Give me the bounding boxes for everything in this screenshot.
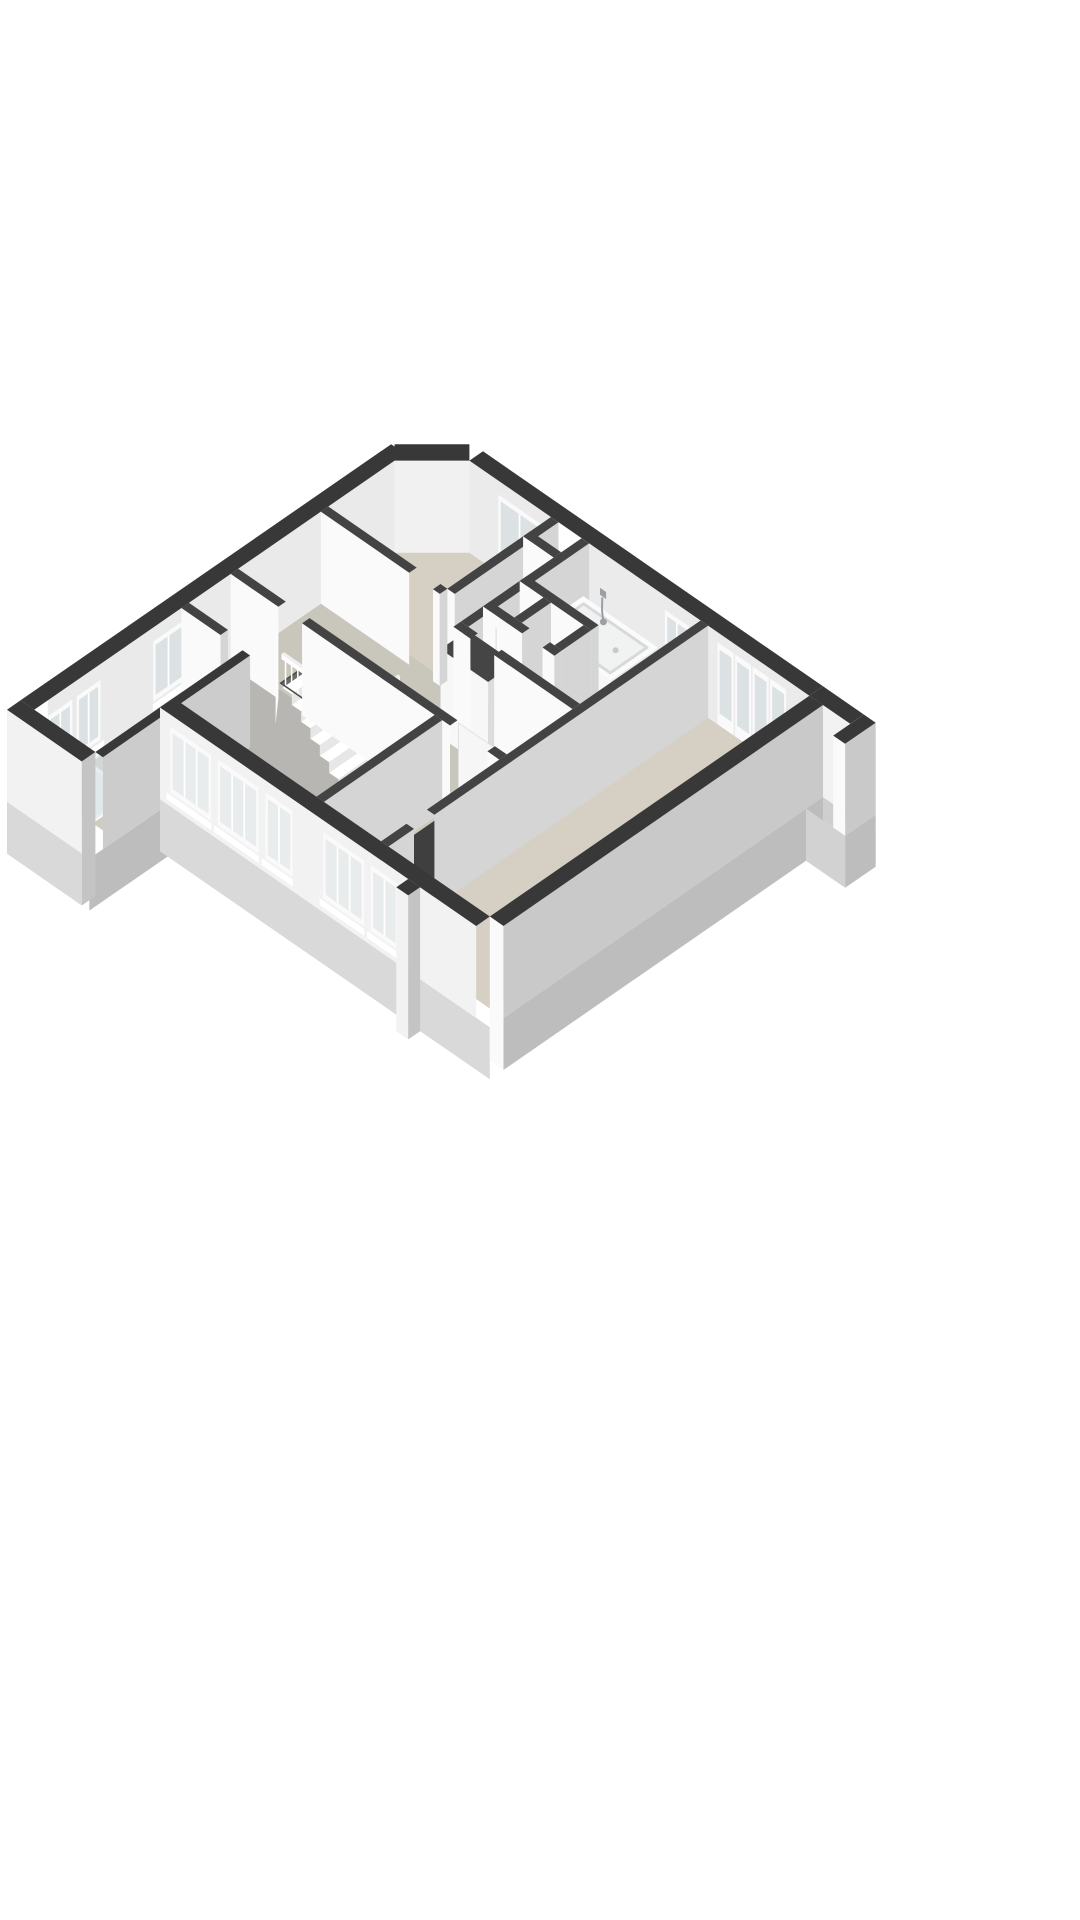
window-sw-3-mullion — [278, 806, 280, 863]
window-sw-1-mullion — [196, 749, 198, 806]
wall-bedroom-south-b-face — [433, 589, 440, 686]
wall-bedroom-south-b-end — [440, 589, 448, 686]
window-sw-4-mullion — [349, 855, 351, 912]
sw-nib-face — [396, 887, 408, 1039]
bath-hand-shower-head — [600, 618, 607, 625]
window-sw-1-mullion — [184, 741, 186, 798]
window-sw-5-mullion — [384, 879, 386, 936]
window-annex-a-mullion — [88, 693, 90, 744]
window-sw-2-mullion — [243, 782, 245, 839]
french-door-glass — [720, 650, 732, 722]
french-door-glass — [737, 662, 749, 734]
chamfer-wall-cap — [395, 444, 470, 460]
floor-plan-3d — [0, 0, 1080, 1920]
sw-nib-side — [408, 887, 420, 1039]
railing-spindle — [285, 659, 287, 686]
railing-spindle — [291, 663, 293, 690]
window-sw-4-mullion — [337, 847, 339, 904]
chamfer-wall-face — [395, 461, 470, 553]
se-wall-end — [490, 917, 504, 1071]
annex-sw-end — [82, 752, 96, 906]
floor-plan-canvas — [0, 0, 1080, 1920]
wall-bathroom-south-a-face — [453, 627, 470, 731]
railing-spindle — [297, 667, 299, 694]
bathtub-drain — [613, 647, 619, 653]
balcony-wall-e-end — [833, 736, 845, 836]
bath-hand-shower-hose — [602, 597, 603, 619]
window-shower-room-mullion — [168, 635, 170, 686]
window-sw-2-mullion — [231, 774, 233, 831]
